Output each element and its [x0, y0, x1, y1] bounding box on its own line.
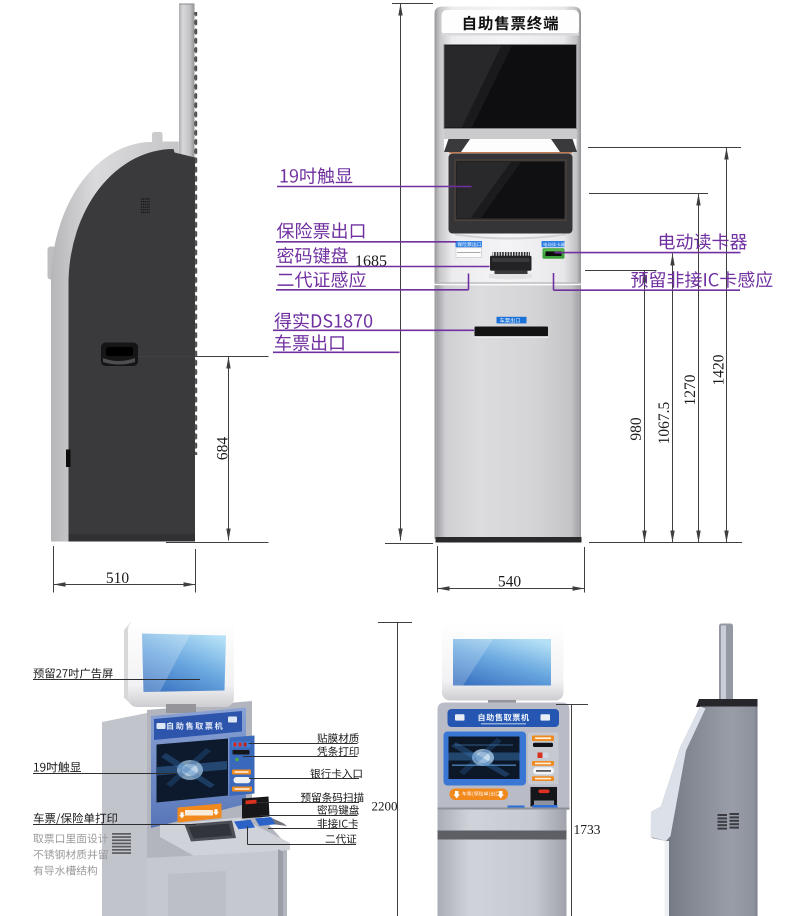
svg-text:684: 684 [215, 437, 232, 461]
svg-text:1685: 1685 [355, 253, 387, 270]
svg-text:1067.5: 1067.5 [656, 401, 673, 444]
svg-text:510: 510 [106, 570, 130, 587]
svg-text:540: 540 [498, 574, 522, 591]
svg-text:980: 980 [628, 417, 645, 441]
svg-text:1733: 1733 [574, 822, 601, 837]
svg-text:1420: 1420 [711, 354, 728, 385]
svg-text:1270: 1270 [682, 374, 699, 405]
svg-text:2200: 2200 [372, 799, 398, 814]
